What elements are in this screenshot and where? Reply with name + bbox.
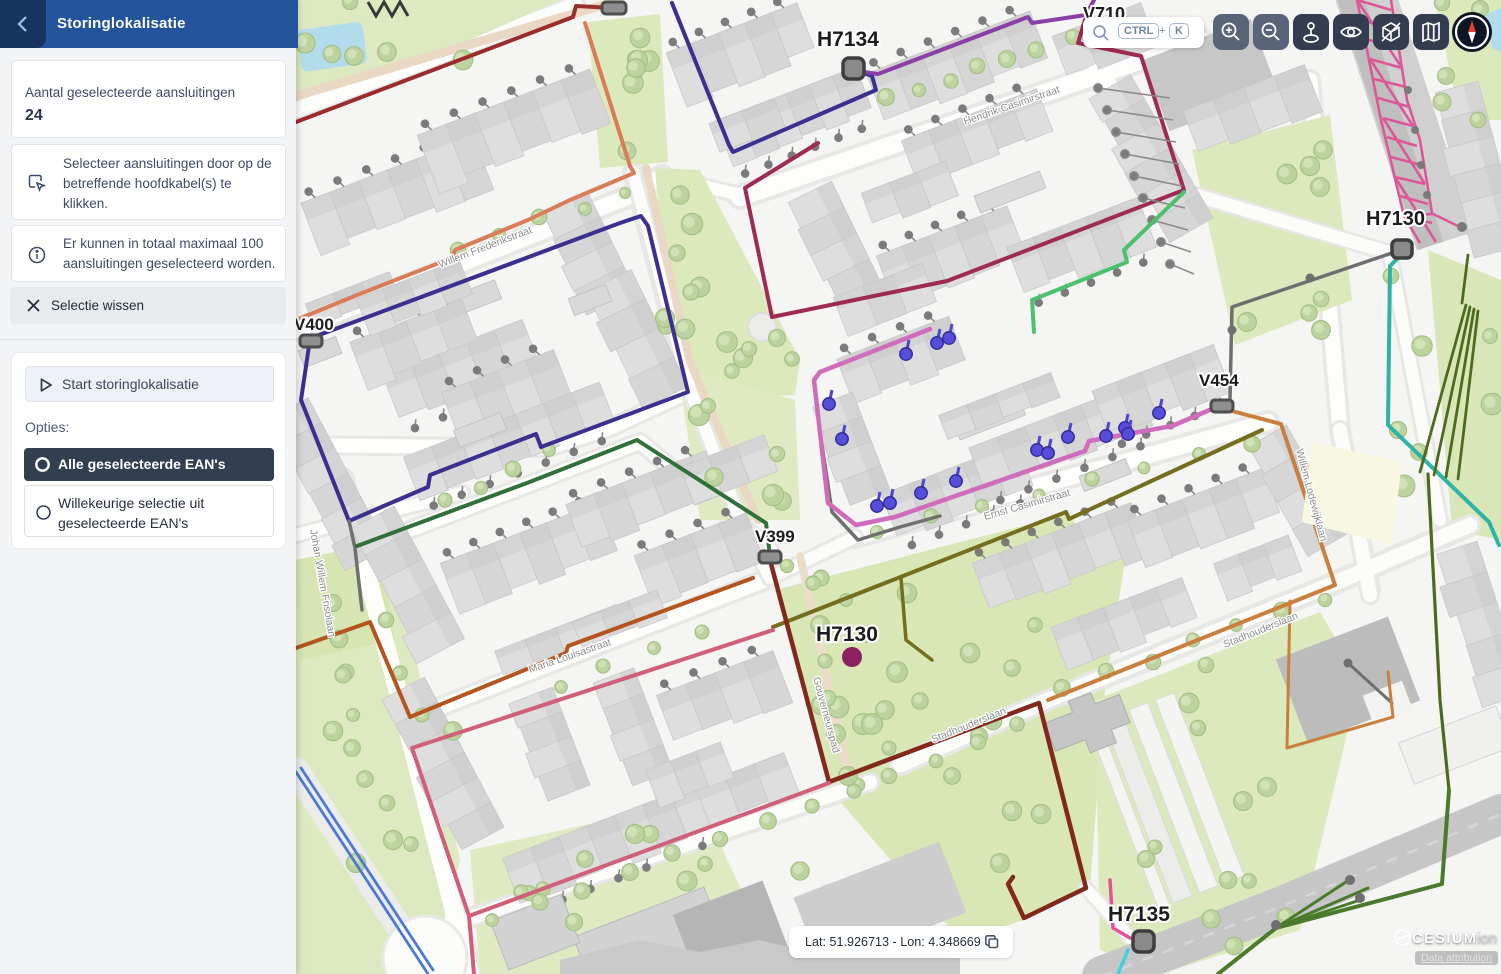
svg-text:H7130: H7130: [816, 623, 878, 646]
svg-text:H7130: H7130: [1366, 208, 1425, 230]
svg-text:H7134: H7134: [817, 28, 879, 51]
svg-text:V399: V399: [755, 527, 795, 546]
svg-text:V400: V400: [296, 315, 334, 334]
svg-text:V454: V454: [1199, 371, 1239, 390]
svg-text:H7135: H7135: [1108, 903, 1170, 926]
